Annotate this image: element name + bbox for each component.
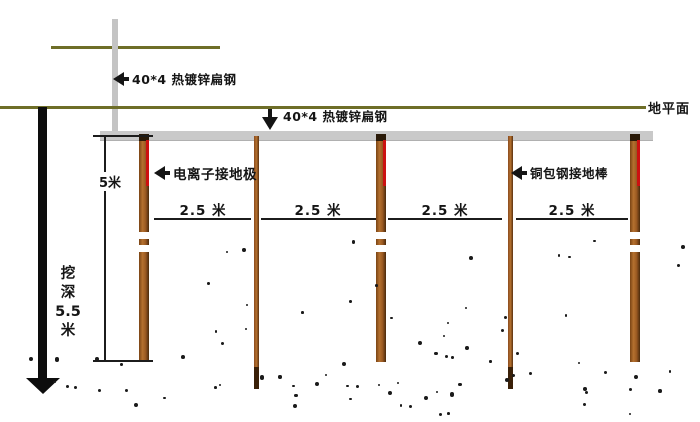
ion-electrode-rod-1 [139, 134, 149, 362]
arrow-tail [522, 171, 527, 175]
spacing-label-3: 2.5 米 [415, 199, 475, 219]
dig-depth-arrow-shaft [38, 107, 47, 379]
dig-depth-line-1: 挖 [61, 267, 76, 282]
callout-flat-steel-buried [262, 109, 278, 130]
rod-red-stripe [383, 140, 386, 186]
rod-band [629, 232, 641, 239]
ion-electrode-rod-2 [376, 134, 386, 362]
arrow-left-icon [154, 166, 165, 180]
spacing-label-4: 2.5 米 [542, 199, 602, 219]
callout-ion-electrode: 电离子接地极 [154, 163, 257, 183]
rod-band [629, 245, 641, 252]
flat-steel-buried-label: 40*4 热镀锌扁钢 [283, 106, 387, 125]
copper-rod-label: 铜包钢接地棒 [530, 163, 608, 182]
arrow-tail [268, 109, 272, 117]
rod-band [138, 232, 150, 239]
arrow-tail [124, 77, 129, 81]
arrow-left-icon [113, 72, 124, 86]
callout-copper-rod: 铜包钢接地棒 [511, 163, 608, 182]
rod-tip [508, 367, 513, 389]
depth-dim-vline [104, 136, 106, 361]
ion-electrode-rod-3 [630, 134, 640, 362]
arrow-tail [165, 171, 170, 175]
ground-level-label: 地平面 [648, 98, 690, 117]
rod-band [375, 232, 387, 239]
dig-depth-line-3: 5.5 [55, 305, 81, 320]
arrow-left-icon [511, 166, 522, 180]
dig-depth-line-4: 米 [61, 324, 76, 339]
rod-red-stripe [637, 140, 640, 186]
callout-flat-steel-riser: 40*4 热镀锌扁钢 [113, 69, 236, 88]
rod-band [138, 245, 150, 252]
depth-dim-bottom-tick [93, 360, 153, 362]
grounding-diagram-canvas: 40*4 热镀锌扁钢 地平面 40*4 热镀锌扁钢 电离子接地极 [0, 0, 700, 422]
arrow-down-icon [262, 117, 278, 130]
rod-red-stripe [146, 140, 149, 186]
dig-depth-line-2: 深 [61, 286, 76, 301]
above-ground-bus-line [51, 46, 220, 49]
ion-electrode-label: 电离子接地极 [173, 163, 257, 183]
electrode-length-label: 5米 [98, 172, 122, 191]
spacing-label-1: 2.5 米 [173, 199, 233, 219]
dig-depth-arrow-head-icon [26, 378, 60, 394]
rod-band [375, 245, 387, 252]
spacing-label-2: 2.5 米 [288, 199, 348, 219]
dig-depth-label: 挖 深 5.5 米 [52, 267, 84, 339]
rod-tip [254, 367, 259, 389]
depth-dim-top-tick [93, 135, 153, 137]
flat-steel-riser-label: 40*4 热镀锌扁钢 [132, 69, 236, 88]
